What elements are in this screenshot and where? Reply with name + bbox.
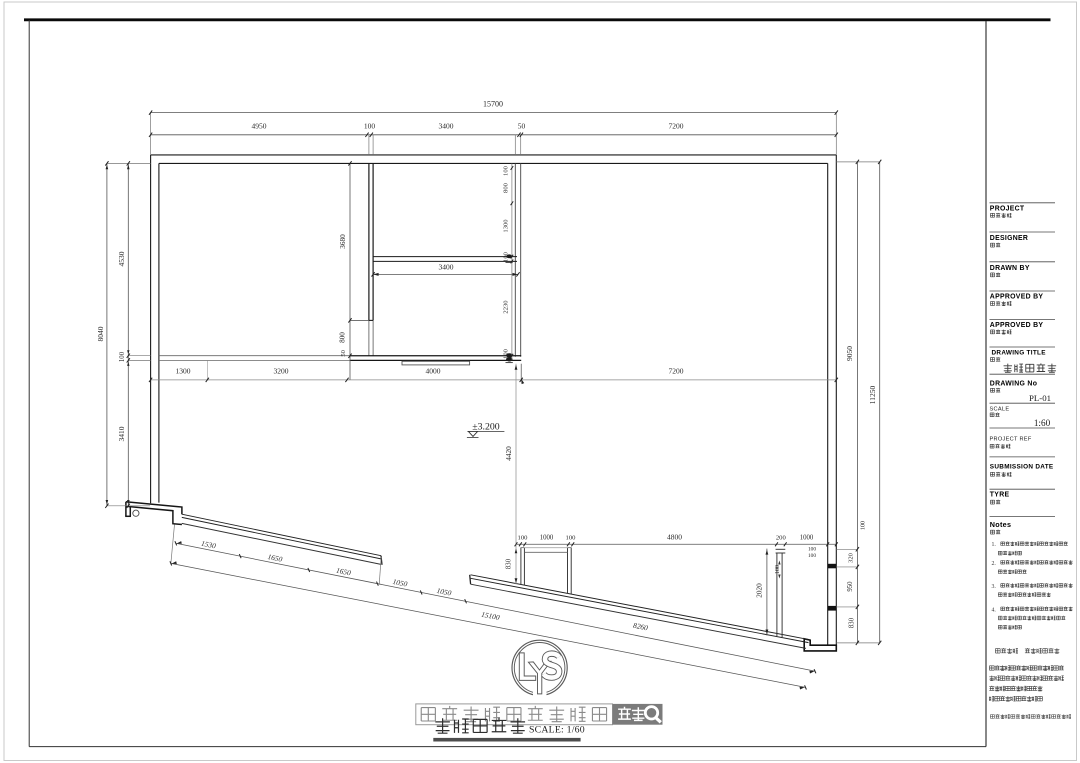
svg-text:100: 100 [774,565,781,574]
svg-text:3.: 3. [992,584,997,590]
svg-text:830: 830 [848,617,855,628]
svg-text:4800: 4800 [667,533,682,542]
svg-text:2.: 2. [992,561,997,567]
svg-text:DESIGNER: DESIGNER [990,235,1028,242]
svg-text:100: 100 [518,535,529,542]
svg-text:3410: 3410 [117,426,126,441]
svg-text:4.: 4. [992,607,997,613]
svg-text:100: 100 [860,521,867,530]
svg-text:2020: 2020 [755,583,763,598]
svg-text:DRAWING TITLE: DRAWING TITLE [992,349,1047,356]
svg-text:1000: 1000 [800,535,814,542]
svg-text:100: 100 [364,122,376,131]
svg-text:SCALE: 1/60: SCALE: 1/60 [529,725,585,736]
svg-text:100: 100 [119,351,126,362]
svg-text:PROJECT: PROJECT [990,205,1025,212]
svg-text:800: 800 [339,332,347,343]
svg-text:100: 100 [502,251,509,262]
svg-text:PL-01: PL-01 [1029,393,1051,403]
svg-text:1000: 1000 [540,535,554,542]
svg-text:4530: 4530 [117,251,126,266]
svg-text:3680: 3680 [339,234,347,249]
svg-text:800: 800 [502,182,509,193]
svg-text:4000: 4000 [426,367,441,376]
svg-text:100: 100 [502,348,509,359]
svg-text:8040: 8040 [96,326,105,341]
svg-text:3200: 3200 [274,367,289,376]
svg-text:PROJECT REF: PROJECT REF [990,436,1032,442]
svg-text:200: 200 [776,535,787,542]
svg-text:1.: 1. [992,542,997,548]
svg-text:100: 100 [808,553,816,559]
svg-text:1300: 1300 [502,219,509,233]
svg-text:50: 50 [340,349,347,356]
svg-text:100: 100 [502,165,509,176]
svg-text:7200: 7200 [669,367,684,376]
svg-text:Notes: Notes [990,520,1011,529]
svg-text:3400: 3400 [439,263,454,272]
svg-text:15700: 15700 [483,100,503,109]
svg-text:3400: 3400 [439,122,454,131]
svg-text:950: 950 [847,581,854,592]
svg-text:11250: 11250 [868,386,877,405]
svg-text:4420: 4420 [505,446,513,461]
svg-text:DRAWN BY: DRAWN BY [990,265,1030,272]
svg-text:100: 100 [566,535,577,542]
svg-text:APPROVED BY: APPROVED BY [990,293,1044,300]
svg-text:DRAWING No: DRAWING No [990,380,1037,387]
svg-text:±3.200: ±3.200 [472,421,500,432]
svg-text:APPROVED BY: APPROVED BY [990,322,1044,329]
svg-text:830: 830 [505,558,512,569]
svg-text:50: 50 [518,122,526,131]
svg-text:1300: 1300 [176,367,191,376]
svg-text:7200: 7200 [669,122,684,131]
svg-text:SUBMISSION DATE: SUBMISSION DATE [990,463,1054,470]
svg-text:TYRE: TYRE [990,492,1010,499]
svg-text:320: 320 [848,552,855,563]
svg-text:4950: 4950 [252,122,267,131]
svg-text:9050: 9050 [845,346,854,361]
svg-text:SCALE: SCALE [990,406,1010,412]
svg-text:100: 100 [808,547,816,553]
svg-text:1:60: 1:60 [1034,418,1051,428]
svg-text:2230: 2230 [502,300,509,314]
